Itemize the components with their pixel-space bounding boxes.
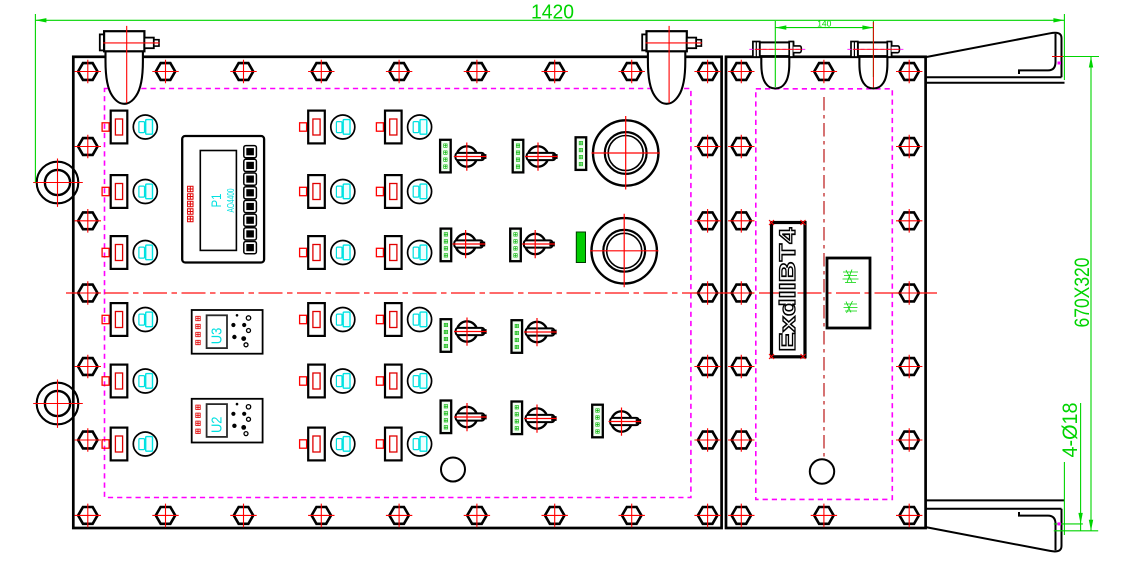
svg-text:U2: U2 bbox=[209, 417, 226, 434]
svg-text:4-Ø18: 4-Ø18 bbox=[1059, 403, 1082, 458]
svg-text:670X320: 670X320 bbox=[1071, 258, 1094, 328]
svg-text:AO4400: AO4400 bbox=[226, 188, 237, 212]
svg-text:ExdIIBT4: ExdIIBT4 bbox=[775, 227, 800, 352]
svg-text:140: 140 bbox=[817, 19, 831, 29]
svg-text:1420: 1420 bbox=[531, 2, 574, 24]
svg-text:U3: U3 bbox=[209, 328, 226, 345]
svg-text:P1: P1 bbox=[208, 193, 224, 207]
